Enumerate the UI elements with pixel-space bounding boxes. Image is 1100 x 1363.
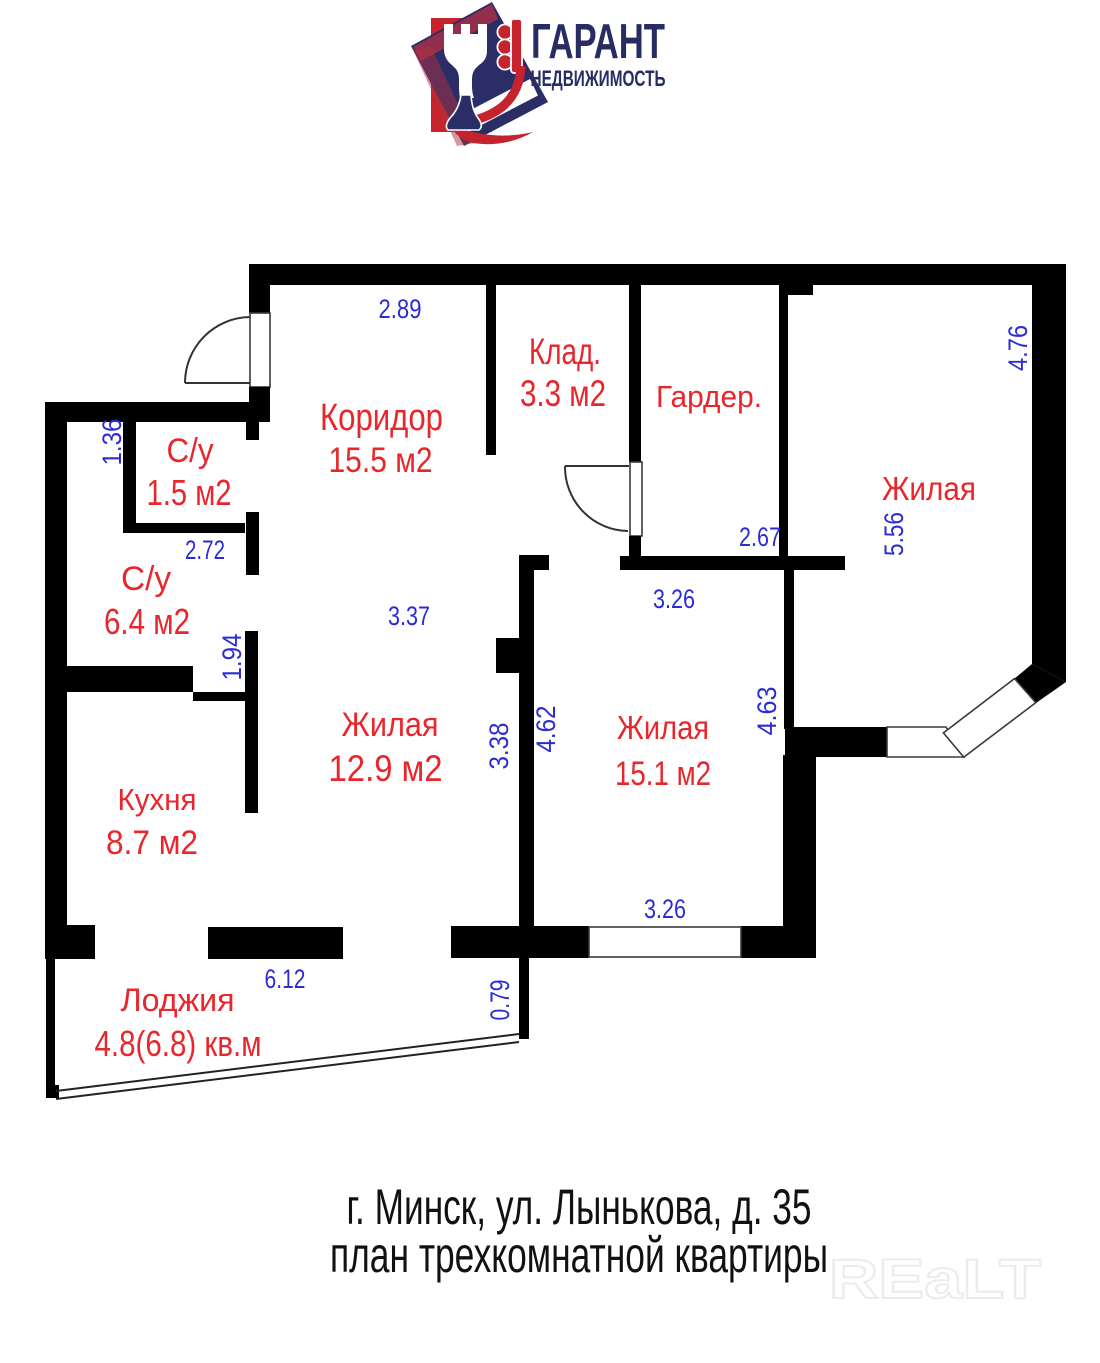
- svg-text:2.72: 2.72: [185, 535, 225, 565]
- svg-text:С/у: С/у: [121, 560, 171, 598]
- svg-text:4.76: 4.76: [1003, 325, 1033, 371]
- svg-text:6.4 м2: 6.4 м2: [104, 601, 190, 642]
- svg-text:1.94: 1.94: [217, 634, 247, 681]
- svg-text:3.3 м2: 3.3 м2: [520, 373, 606, 414]
- svg-text:15.1 м2: 15.1 м2: [615, 755, 711, 793]
- svg-text:4.8(6.8) кв.м: 4.8(6.8) кв.м: [95, 1023, 262, 1064]
- svg-text:2.89: 2.89: [379, 294, 422, 324]
- svg-text:3.37: 3.37: [388, 601, 430, 631]
- svg-text:Жилая: Жилая: [342, 706, 439, 744]
- svg-text:2.67: 2.67: [739, 522, 781, 552]
- svg-text:НЕДВИЖИМОСТЬ: НЕДВИЖИМОСТЬ: [531, 66, 666, 91]
- svg-text:8.7 м2: 8.7 м2: [106, 824, 198, 862]
- svg-text:1.36: 1.36: [97, 419, 127, 466]
- svg-text:5.56: 5.56: [879, 512, 909, 556]
- svg-text:4.62: 4.62: [531, 706, 561, 753]
- svg-text:план трехкомнатной квартиры: план трехкомнатной квартиры: [330, 1227, 828, 1283]
- svg-text:3.38: 3.38: [484, 723, 514, 770]
- svg-text:Лоджия: Лоджия: [121, 982, 235, 1018]
- svg-text:Гардер.: Гардер.: [656, 379, 762, 414]
- svg-text:Жилая: Жилая: [617, 709, 709, 746]
- svg-text:Кухня: Кухня: [118, 782, 197, 817]
- svg-text:12.9 м2: 12.9 м2: [329, 748, 443, 789]
- svg-text:3.26: 3.26: [653, 584, 695, 614]
- svg-text:Клад.: Клад.: [529, 331, 601, 372]
- svg-text:6.12: 6.12: [265, 964, 306, 994]
- svg-text:0.79: 0.79: [485, 980, 515, 1021]
- svg-text:С/у: С/у: [167, 432, 214, 470]
- svg-text:3.26: 3.26: [644, 894, 686, 924]
- svg-text:REaLT: REaLT: [829, 1247, 1041, 1310]
- svg-text:4.63: 4.63: [752, 687, 782, 736]
- svg-text:Коридор: Коридор: [320, 397, 443, 439]
- svg-text:ГАРАНТ: ГАРАНТ: [531, 15, 665, 69]
- svg-text:1.5 м2: 1.5 м2: [147, 472, 232, 513]
- svg-text:Жилая: Жилая: [882, 470, 976, 507]
- svg-text:15.5 м2: 15.5 м2: [329, 441, 433, 480]
